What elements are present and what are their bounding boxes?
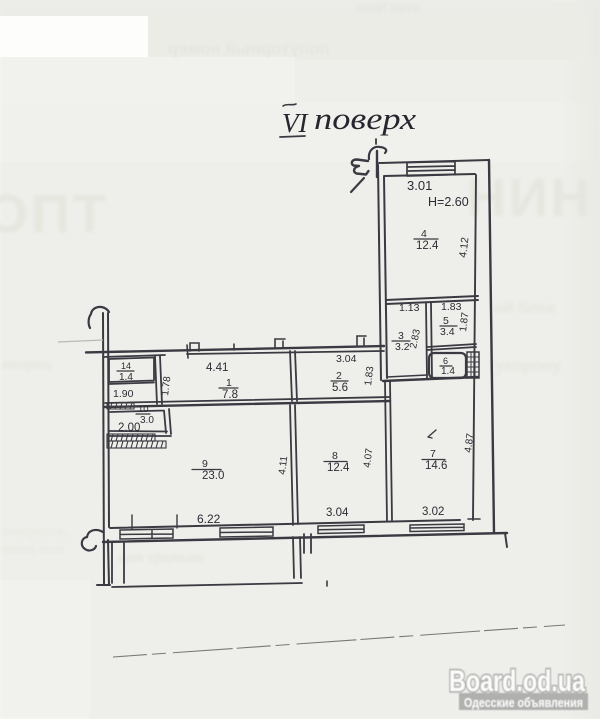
svg-text:цен трально: цен трально <box>118 549 204 565</box>
svg-text:1.13: 1.13 <box>399 302 420 314</box>
svg-text:ОПТ: ОПТ <box>0 184 109 244</box>
svg-text:этаж №он: этаж №он <box>356 0 420 15</box>
svg-text:4.41: 4.41 <box>206 362 228 374</box>
svg-text:6: 6 <box>443 356 448 366</box>
svg-text:писувать,: писувать, <box>2 523 70 539</box>
svg-text:3.01: 3.01 <box>407 178 432 193</box>
svg-text:1.4: 1.4 <box>441 366 455 377</box>
svg-text:ий блок: ий блок <box>494 300 556 317</box>
svg-text:2: 2 <box>336 370 342 382</box>
svg-text:7.8: 7.8 <box>222 389 238 401</box>
svg-text:1.83: 1.83 <box>441 301 462 313</box>
svg-text:12.4: 12.4 <box>416 240 439 252</box>
svg-text:14.6: 14.6 <box>425 460 447 472</box>
svg-text:Одесские объявления: Одесские объявления <box>464 696 583 710</box>
svg-text:VI: VI <box>282 108 309 138</box>
svg-text:12.4: 12.4 <box>327 462 350 474</box>
svg-text:Н=2.60: Н=2.60 <box>428 195 469 209</box>
svg-text:полуторный номер: полуторный номер <box>168 39 330 58</box>
svg-text:1: 1 <box>226 377 232 389</box>
svg-text:поверх: поверх <box>314 101 416 136</box>
svg-text:4.11: 4.11 <box>277 455 290 475</box>
svg-text:вина осо: вина осо <box>2 541 64 557</box>
svg-text:3.04: 3.04 <box>326 507 349 519</box>
svg-text:4.12: 4.12 <box>457 236 471 258</box>
svg-text:2.00: 2.00 <box>118 422 140 434</box>
svg-text:НИН: НИН <box>467 168 593 228</box>
svg-text:10: 10 <box>138 404 149 415</box>
svg-text:охорон: охорон <box>2 356 52 372</box>
svg-text:3.04: 3.04 <box>336 353 357 365</box>
svg-text:8: 8 <box>332 450 338 462</box>
svg-text:3.0: 3.0 <box>140 415 154 426</box>
svg-text:1.90: 1.90 <box>113 388 134 400</box>
svg-text:5.6: 5.6 <box>332 382 348 394</box>
svg-text:(ухорону: (ухорону <box>490 358 561 375</box>
svg-text:6.22: 6.22 <box>197 512 221 526</box>
svg-text:1.4: 1.4 <box>119 372 133 383</box>
svg-text:4: 4 <box>421 228 427 240</box>
svg-text:9: 9 <box>202 458 208 470</box>
svg-text:23.0: 23.0 <box>202 470 224 482</box>
svg-text:7: 7 <box>430 448 436 460</box>
svg-text:3.02: 3.02 <box>422 506 444 518</box>
svg-text:3.4: 3.4 <box>440 326 455 338</box>
svg-text:14: 14 <box>121 361 131 371</box>
